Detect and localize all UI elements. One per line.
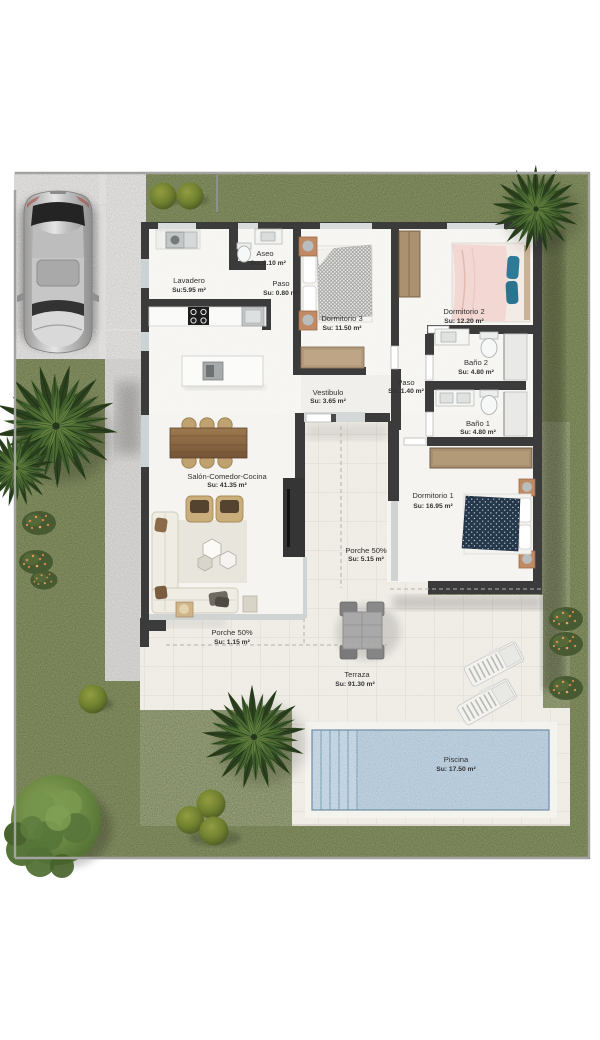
svg-text:Su: 3.65 m²: Su: 3.65 m² — [310, 398, 346, 405]
svg-text:Su: 2.10 m²: Su: 2.10 m² — [250, 260, 286, 267]
svg-text:Su:5.95 m²: Su:5.95 m² — [172, 287, 207, 294]
svg-text:Su: 41.35 m²: Su: 41.35 m² — [207, 482, 247, 489]
svg-text:Porche 50%: Porche 50% — [345, 546, 387, 555]
svg-text:Lavadero: Lavadero — [173, 276, 205, 285]
svg-text:Su: 91.30 m²: Su: 91.30 m² — [335, 681, 375, 688]
svg-text:Aseo: Aseo — [256, 249, 273, 258]
svg-text:Su: 4.80 m²: Su: 4.80 m² — [458, 369, 494, 376]
svg-text:Baño 2: Baño 2 — [464, 358, 488, 367]
svg-text:Paso: Paso — [397, 378, 414, 387]
svg-text:Porche 50%: Porche 50% — [211, 628, 253, 637]
svg-text:Su: 0.80 m²: Su: 0.80 m² — [263, 290, 299, 297]
svg-text:Terraza: Terraza — [344, 670, 370, 679]
svg-text:Su: 11.50 m²: Su: 11.50 m² — [322, 325, 362, 332]
svg-text:Baño 1: Baño 1 — [466, 419, 490, 428]
svg-text:Su: 4.80 m²: Su: 4.80 m² — [460, 429, 496, 436]
svg-text:Piscina: Piscina — [444, 755, 469, 764]
svg-text:Dormitorio 3: Dormitorio 3 — [321, 314, 362, 323]
svg-text:Dormitorio 2: Dormitorio 2 — [443, 307, 484, 316]
svg-text:Salón-Comedor-Cocina: Salón-Comedor-Cocina — [187, 472, 267, 481]
svg-text:Dormitorio 1: Dormitorio 1 — [412, 491, 453, 500]
svg-text:Su: 12.20 m²: Su: 12.20 m² — [444, 318, 484, 325]
svg-text:Paso: Paso — [272, 279, 289, 288]
svg-text:Su: 16.95 m²: Su: 16.95 m² — [413, 503, 453, 510]
svg-text:Su: 1.15 m²: Su: 1.15 m² — [214, 639, 250, 646]
svg-text:Vestibulo: Vestibulo — [313, 388, 344, 397]
svg-text:Su: 5.15 m²: Su: 5.15 m² — [348, 556, 384, 563]
svg-text:Su: 1.40 m²: Su: 1.40 m² — [388, 388, 424, 395]
svg-text:Su: 17.50 m²: Su: 17.50 m² — [436, 766, 476, 773]
